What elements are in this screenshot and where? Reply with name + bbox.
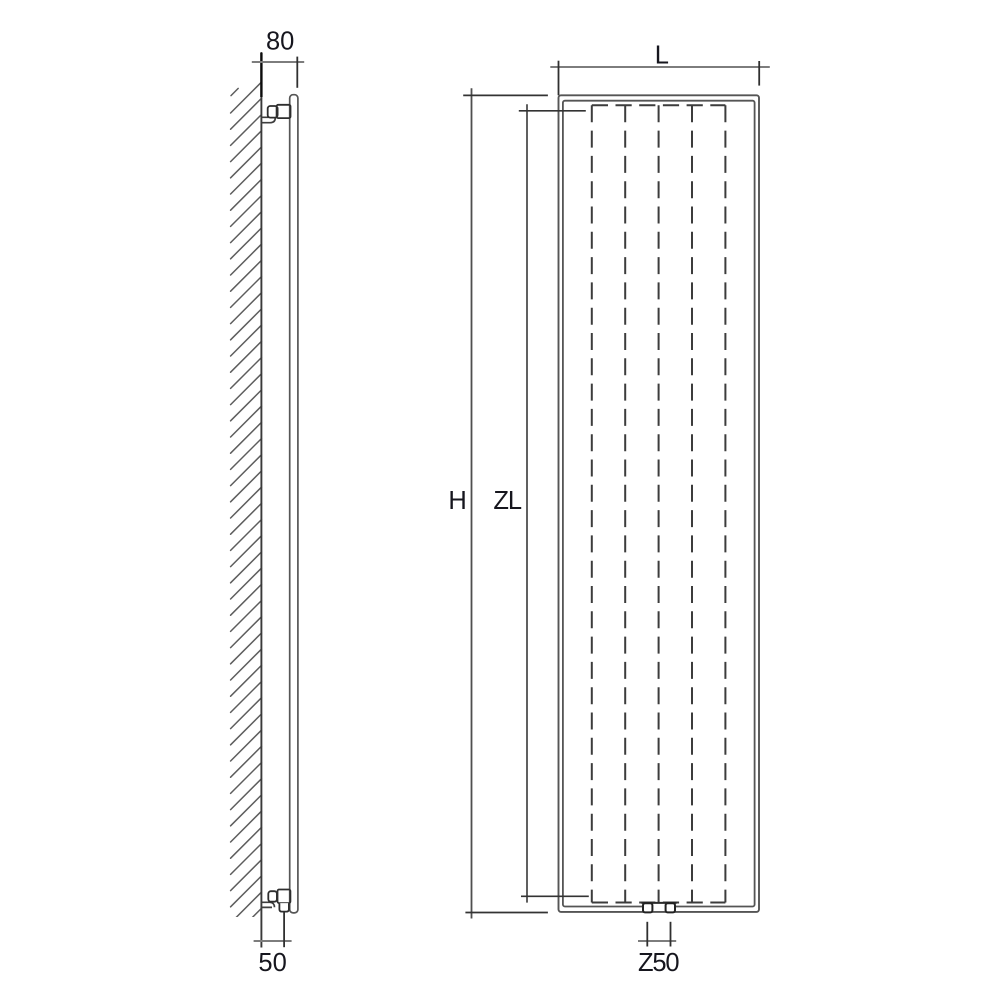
svg-text:H: H [448,487,466,515]
svg-text:ZL: ZL [493,487,522,515]
svg-text:Z50: Z50 [638,949,679,977]
svg-text:50: 50 [258,949,286,977]
svg-text:80: 80 [266,28,294,56]
svg-text:L: L [655,41,669,69]
